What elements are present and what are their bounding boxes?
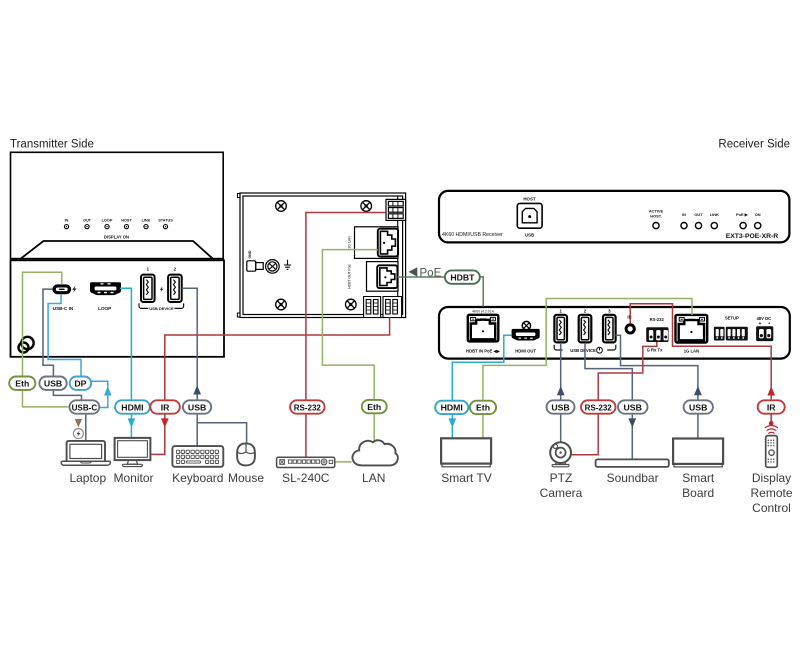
- svg-text:LOOP: LOOP: [102, 219, 113, 223]
- svg-text:GND: GND: [248, 250, 252, 258]
- svg-text:Smart: Smart: [682, 471, 715, 485]
- svg-text:LINK: LINK: [710, 212, 719, 217]
- svg-text:USB-C IN: USB-C IN: [53, 306, 74, 311]
- svg-text:Laptop: Laptop: [69, 471, 106, 485]
- svg-text:SETUP: SETUP: [725, 316, 739, 321]
- svg-text:2: 2: [174, 266, 177, 271]
- svg-text:1G LAN: 1G LAN: [684, 349, 699, 354]
- svg-text:ON: ON: [755, 212, 761, 217]
- svg-text:HDMI: HDMI: [441, 403, 463, 413]
- svg-text:HDBT OUT PoE: HDBT OUT PoE: [348, 263, 352, 288]
- svg-text:Monitor: Monitor: [113, 471, 153, 485]
- svg-text:IN: IN: [682, 212, 686, 217]
- svg-text:HDMI: HDMI: [121, 402, 143, 412]
- svg-text:HDMI OUT: HDMI OUT: [515, 349, 536, 354]
- svg-text:USB: USB: [188, 402, 206, 412]
- svg-text:G Rx Tx: G Rx Tx: [647, 348, 663, 353]
- svg-text:HOST: HOST: [523, 197, 536, 202]
- svg-text:Transmitter Side: Transmitter Side: [10, 139, 94, 151]
- svg-text:Control: Control: [752, 501, 791, 515]
- svg-text:HOST.: HOST.: [650, 214, 661, 219]
- svg-text:IR: IR: [767, 402, 776, 412]
- svg-text:4K60 (4:2:0) A: 4K60 (4:2:0) A: [472, 309, 494, 313]
- svg-text:PoE: PoE: [420, 268, 442, 280]
- svg-text:IN: IN: [65, 219, 69, 223]
- svg-text:4K60 HDMI/USB Receiver: 4K60 HDMI/USB Receiver: [442, 232, 503, 238]
- svg-text:RS-232: RS-232: [650, 317, 665, 322]
- svg-text:OUT: OUT: [83, 219, 92, 223]
- svg-text:LAN: LAN: [362, 471, 385, 485]
- svg-text:USB: USB: [624, 402, 642, 412]
- svg-text:IR: IR: [161, 402, 170, 412]
- svg-text:PTZ: PTZ: [550, 471, 573, 485]
- svg-text:HDBT IN PoE ◀▶: HDBT IN PoE ◀▶: [466, 349, 501, 354]
- svg-text:PoE ▶: PoE ▶: [736, 212, 749, 217]
- svg-text:USB-C: USB-C: [72, 403, 98, 412]
- svg-text:LOOP: LOOP: [98, 306, 111, 311]
- svg-text:Smart TV: Smart TV: [441, 471, 491, 485]
- svg-text:1G LAN: 1G LAN: [348, 236, 352, 249]
- svg-text:USB DEVICE: USB DEVICE: [570, 348, 596, 353]
- svg-text:Display: Display: [752, 471, 791, 485]
- svg-text:USB: USB: [44, 379, 62, 389]
- svg-text:DISPLAY ON: DISPLAY ON: [104, 235, 129, 240]
- svg-text:USB: USB: [689, 402, 707, 412]
- svg-text:OUT: OUT: [694, 212, 703, 217]
- svg-text:EXT3-POE-XR-R: EXT3-POE-XR-R: [726, 233, 779, 240]
- svg-text:Soundbar: Soundbar: [607, 471, 659, 485]
- svg-text:HOST: HOST: [121, 219, 132, 223]
- svg-text:USB DEVICE: USB DEVICE: [149, 306, 174, 311]
- svg-text:Remote: Remote: [750, 486, 792, 500]
- svg-text:1: 1: [147, 266, 150, 271]
- svg-text:Keyboard: Keyboard: [172, 471, 223, 485]
- svg-text:RS-232: RS-232: [585, 403, 613, 412]
- svg-text:Receiver Side: Receiver Side: [718, 139, 790, 151]
- svg-text:USB: USB: [551, 402, 569, 412]
- svg-text:RS-232: RS-232: [294, 403, 322, 412]
- svg-text:Board: Board: [682, 486, 714, 500]
- svg-text:STATUS: STATUS: [158, 219, 173, 223]
- svg-text:Eth: Eth: [476, 403, 490, 413]
- svg-text:SL-240C: SL-240C: [282, 471, 330, 485]
- svg-text:Mouse: Mouse: [228, 471, 264, 485]
- svg-text:LINK: LINK: [142, 219, 151, 223]
- svg-text:•: •: [768, 321, 770, 327]
- svg-text:HDBT: HDBT: [450, 272, 475, 282]
- svg-text:DP: DP: [74, 379, 86, 389]
- svg-text:Eth: Eth: [367, 402, 381, 412]
- svg-text:Camera: Camera: [540, 486, 583, 500]
- svg-text:Eth: Eth: [15, 379, 29, 389]
- svg-text:USB: USB: [525, 232, 534, 237]
